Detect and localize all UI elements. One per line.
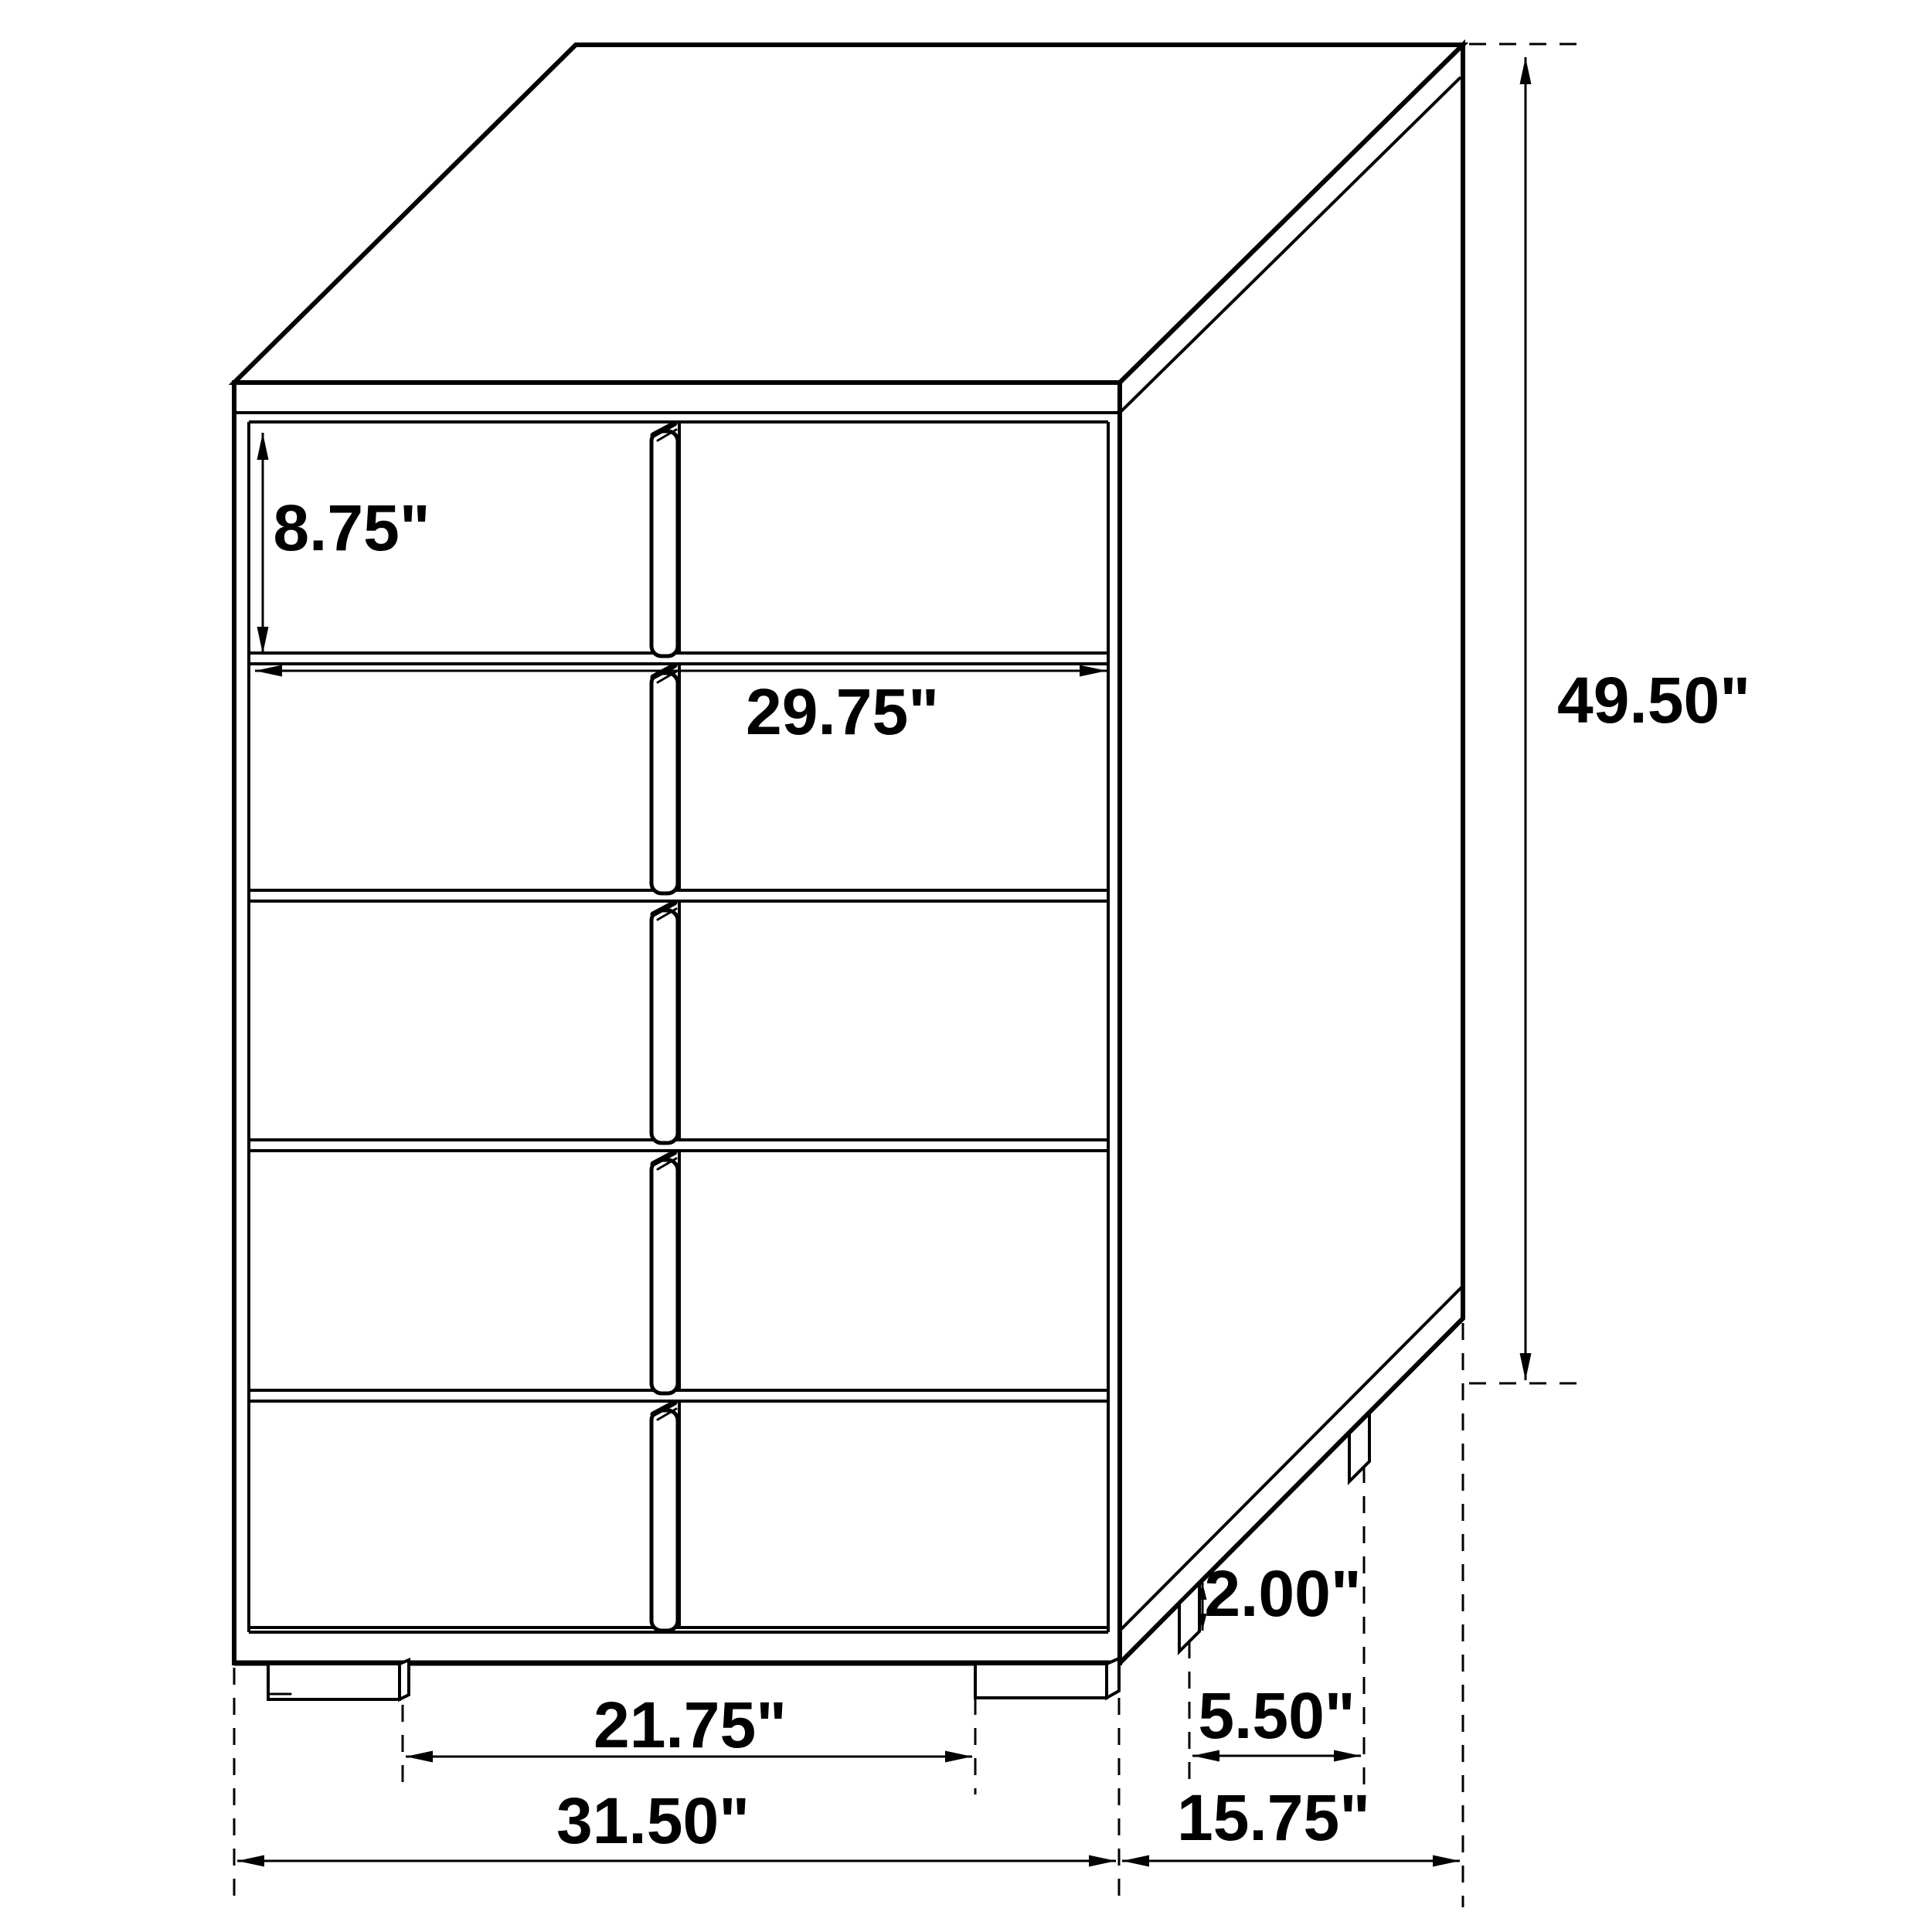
drawer-handle (651, 1160, 678, 1393)
dim-label-drawer-width: 29.75" (746, 675, 939, 748)
front-left-leg-side (400, 1660, 409, 1699)
drawer-handle (651, 673, 678, 893)
dim-label-side-leg-spacing: 5.50" (1198, 1679, 1355, 1752)
dimension-diagram: 8.75" 29.75" 49.50" 2.00" 5.50" 21.75" 3… (0, 0, 1932, 1932)
drawer-handle (651, 910, 678, 1143)
front-right-leg (975, 1664, 1107, 1698)
drawer-handles (651, 422, 679, 1631)
dim-label-overall-width: 31.50" (556, 1784, 750, 1857)
drawer-handle (651, 431, 678, 656)
dim-label-leg-height: 2.00" (1204, 1557, 1361, 1630)
dim-label-overall-height: 49.50" (1557, 664, 1750, 736)
dim-label-drawer-height: 8.75" (273, 492, 430, 564)
drawer-handle (651, 1410, 678, 1631)
chest-outline (234, 45, 1463, 1663)
front-right-leg-side (1107, 1658, 1119, 1698)
dim-label-front-leg-spacing: 21.75" (594, 1689, 787, 1761)
dim-label-overall-depth: 15.75" (1177, 1781, 1370, 1854)
